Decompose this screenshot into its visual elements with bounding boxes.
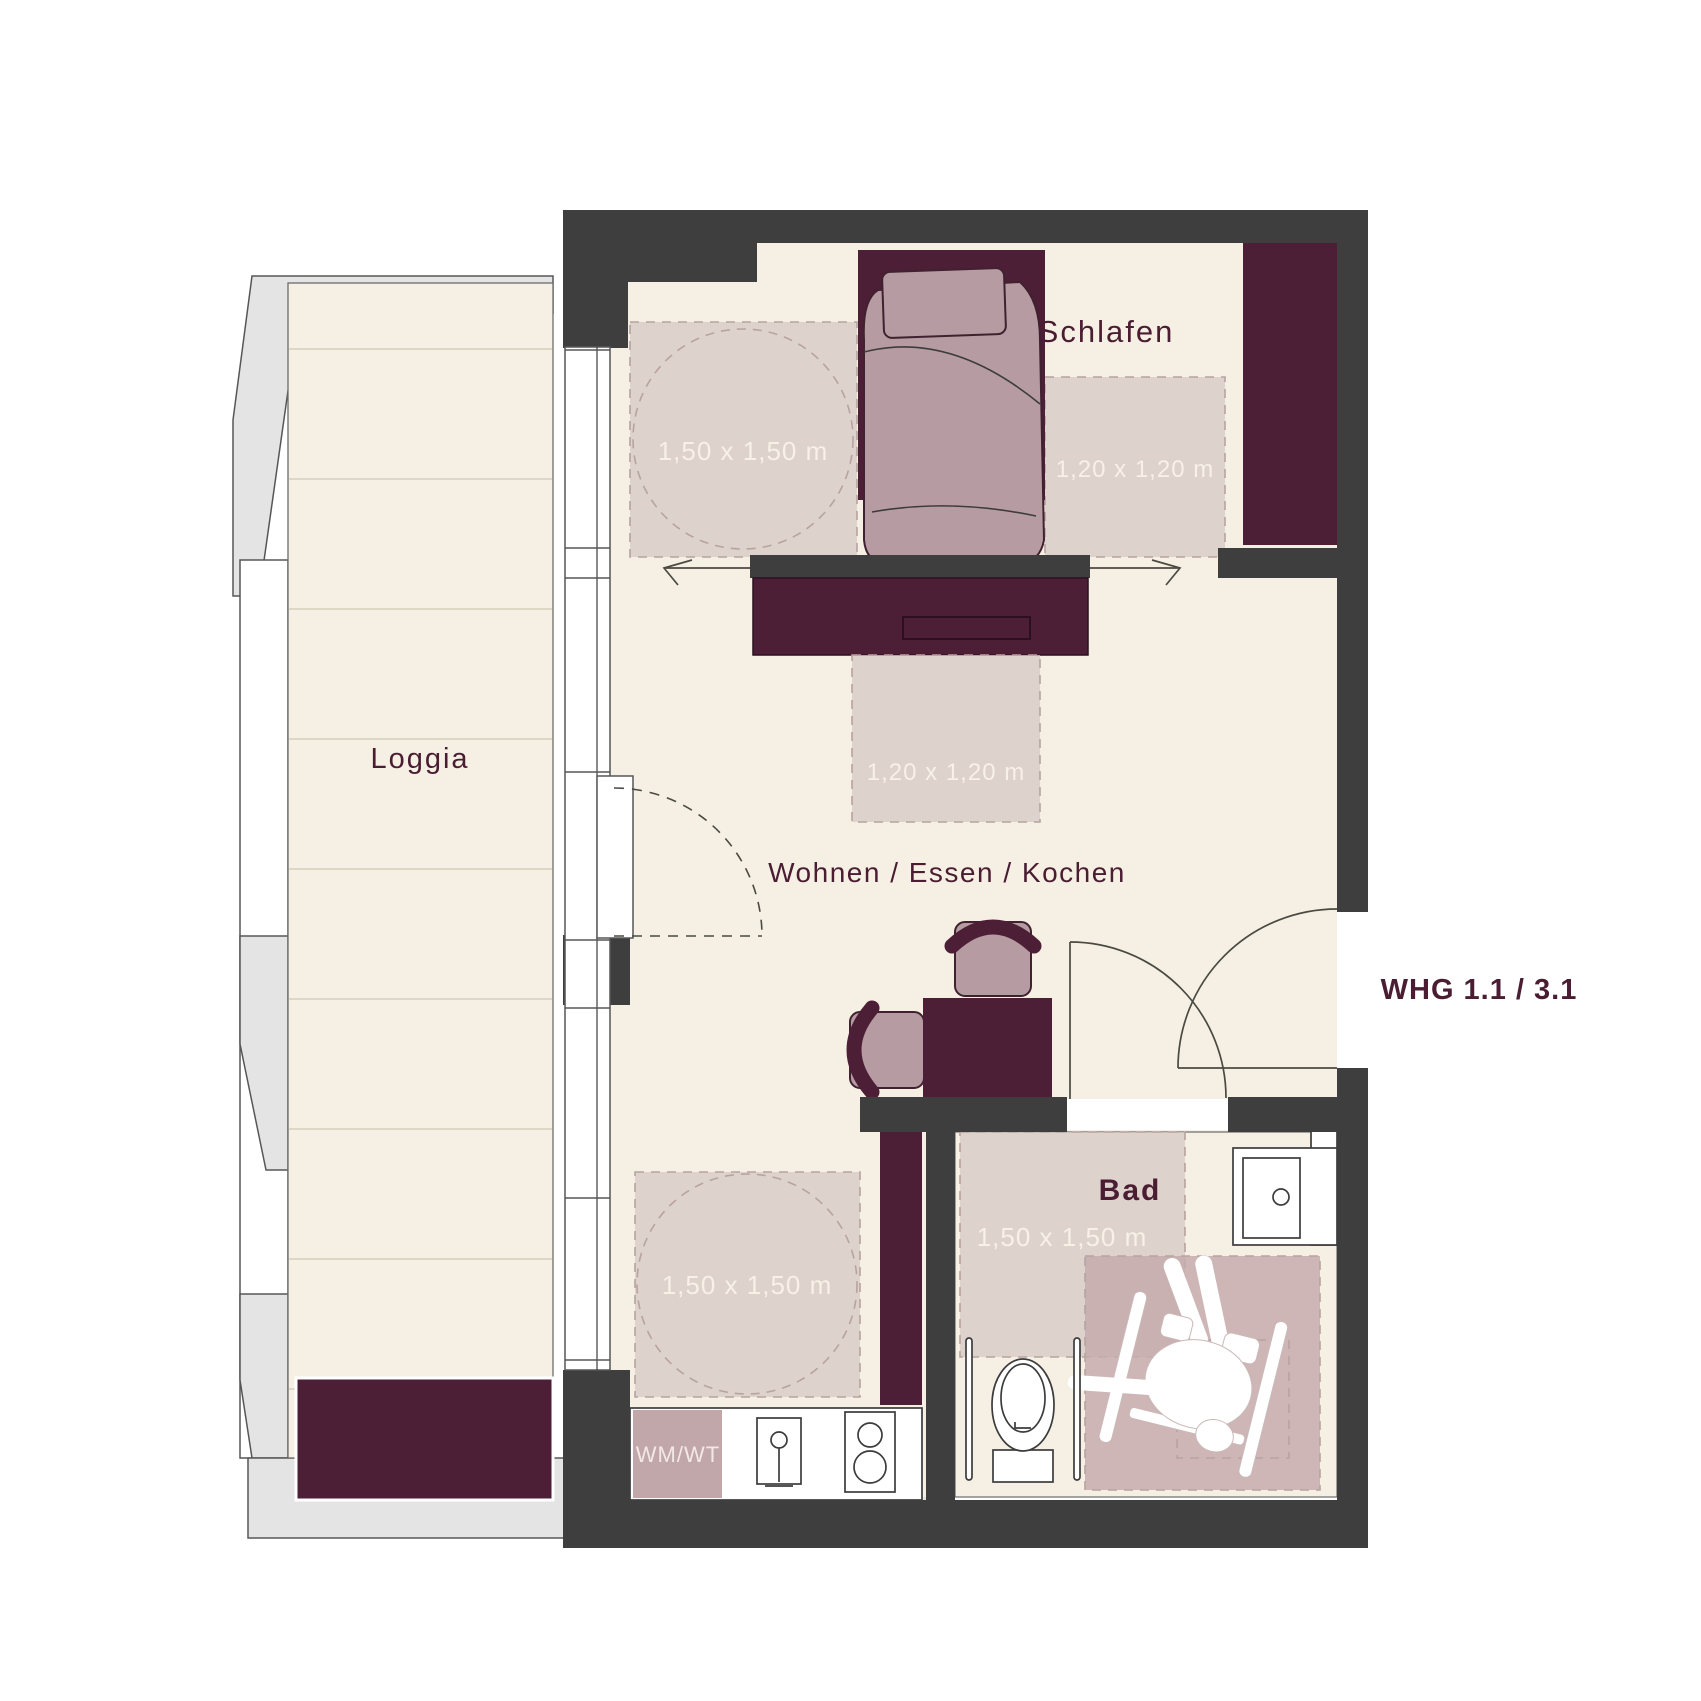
loggia-floor: [288, 283, 553, 1458]
wall-bottom-left-block: [563, 1370, 630, 1548]
kitchen-tall-cabinet: [880, 1100, 922, 1405]
wall-bedroom-stub: [1218, 548, 1337, 578]
wall-bath-top-left: [860, 1097, 1067, 1132]
grab-bar-right: [1074, 1338, 1080, 1480]
bed: [864, 268, 1044, 565]
wall-bottom: [563, 1500, 1368, 1548]
living-room-label: Wohnen / Essen / Kochen: [768, 857, 1126, 888]
bath-door-threshold: [1067, 1099, 1228, 1130]
wall-bath-top-right: [1228, 1097, 1337, 1132]
sleeping-turning-label: 1,50 x 1,50 m: [658, 436, 829, 466]
wardrobe: [1243, 243, 1337, 545]
wall-top-left-corner: [563, 210, 628, 348]
cooktop: [845, 1412, 895, 1492]
apartment-label: WHG 1.1 / 3.1: [1381, 974, 1578, 1006]
kitchen-sink: [757, 1418, 801, 1486]
loggia-planter: [296, 1378, 553, 1500]
bed-pillow: [882, 268, 1006, 338]
bedside-clearance-label: 1,20 x 1,20 m: [1056, 456, 1214, 483]
entry-threshold: [1337, 912, 1368, 1068]
washer-label: WM/WT: [636, 1442, 720, 1467]
balcony-door-leaf: [597, 776, 633, 938]
sleeping-room-label: Schlafen: [1038, 314, 1175, 349]
grab-bar-left: [966, 1338, 972, 1480]
bath-turning-label: 1,50 x 1,50 m: [977, 1222, 1148, 1252]
wall-right-lower: [1337, 1068, 1368, 1548]
bath-room-label: Bad: [1099, 1174, 1162, 1207]
kitchen-turning-label: 1,50 x 1,50 m: [662, 1270, 833, 1300]
dining-table: [923, 998, 1052, 1100]
toilet-tank: [993, 1450, 1053, 1482]
floorplan-canvas: Loggia Schlafen 1,50 x 1,50 m 1,20 x 1,2…: [0, 0, 1701, 1701]
vanity-counter: [1233, 1148, 1337, 1245]
living-passage-label: 1,20 x 1,20 m: [867, 759, 1025, 786]
bathroom: Bad 1,50 x 1,50 m: [955, 1118, 1337, 1497]
loggia-label: Loggia: [370, 743, 469, 775]
kitchen-counter: WM/WT: [630, 1408, 922, 1500]
living-passage-clearance: [852, 655, 1040, 822]
divider-wall: [750, 555, 1090, 578]
wall-right-upper: [1337, 210, 1368, 912]
wall-bath-left: [926, 1097, 955, 1500]
